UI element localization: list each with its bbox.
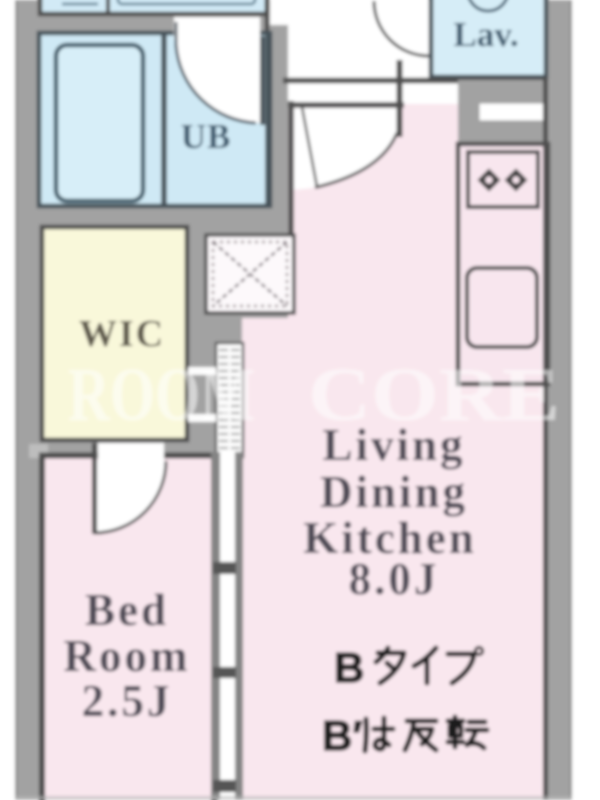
svg-text:2.5J: 2.5J: [82, 676, 173, 726]
svg-text:B: B: [334, 644, 364, 691]
svg-text:Dining: Dining: [320, 467, 468, 517]
svg-text:CORE: CORE: [308, 353, 560, 437]
svg-text:8.0J: 8.0J: [349, 554, 440, 604]
svg-text:WIC: WIC: [79, 313, 165, 355]
svg-text:Room: Room: [64, 631, 191, 681]
svg-text:ROOM: ROOM: [68, 353, 255, 437]
svg-text:Lav.: Lav.: [453, 15, 518, 54]
svg-text:UB: UB: [181, 117, 232, 156]
svg-text:Bed: Bed: [85, 585, 169, 635]
svg-text:B′: B′: [322, 712, 362, 759]
